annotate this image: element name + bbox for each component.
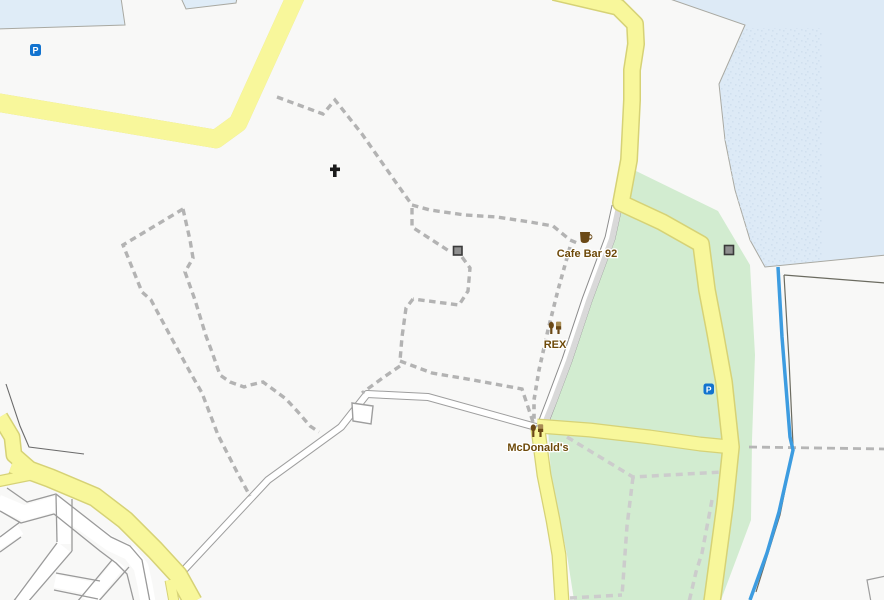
svg-text:P: P [32,46,38,56]
svg-text:McDonald's: McDonald's [507,442,568,454]
svg-text:REX: REX [544,339,567,351]
svg-text:Cafe Bar 92: Cafe Bar 92 [557,248,618,260]
svg-text:P: P [706,385,712,395]
